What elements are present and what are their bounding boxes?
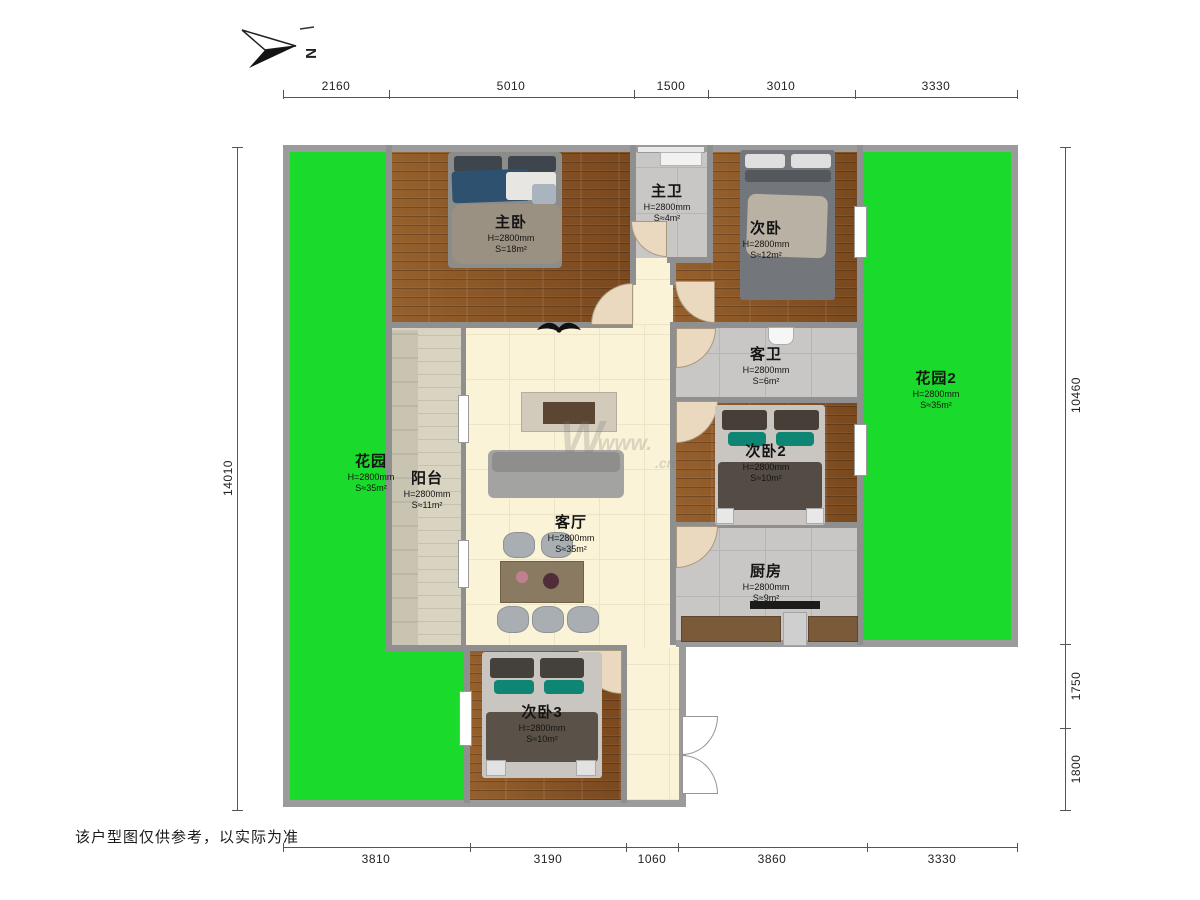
dim-right-2: 1750 (1069, 672, 1083, 701)
table-plate (543, 573, 559, 589)
north-compass-icon: N (232, 16, 327, 76)
pillow (791, 154, 831, 168)
room-height: H=2800mm (519, 723, 566, 734)
entry-door-leaf-bottom (682, 755, 718, 794)
dim-line-left (237, 147, 238, 810)
room-area: S≈11m² (404, 500, 451, 511)
window-bedroom2b-east (854, 424, 867, 476)
cushion-teal (544, 680, 584, 694)
wall-living-east (670, 328, 676, 645)
dim-tick (283, 90, 284, 99)
dim-top-2: 5010 (497, 79, 526, 93)
balcony-door-post-2 (458, 540, 469, 588)
dim-tick (1060, 644, 1071, 645)
chair (532, 606, 564, 633)
dim-tick (867, 843, 868, 852)
wall-masterbath-east (707, 145, 713, 262)
dim-tick (232, 147, 243, 148)
room-area: S≈4m² (644, 213, 691, 224)
dim-top-4: 3010 (767, 79, 796, 93)
dim-tick (1017, 843, 1018, 852)
kitchen-stove (783, 612, 807, 646)
dim-right-3: 1800 (1069, 755, 1083, 784)
dim-line-top (283, 97, 1018, 98)
kitchen-counter-left (681, 616, 781, 642)
room-name: 主卧 (488, 214, 535, 233)
dim-left-1: 14010 (221, 460, 235, 496)
bed-leg (486, 760, 506, 776)
bed-leg (806, 508, 824, 524)
wall-site-west (283, 145, 290, 807)
dim-tick (1060, 810, 1071, 811)
chair (497, 606, 529, 633)
pillow (745, 154, 785, 168)
room-height: H=2800mm (743, 365, 790, 376)
room-name: 次卧 (743, 220, 790, 239)
pillow (774, 410, 819, 430)
label-bedroom2: 次卧 H=2800mm S≈12m² (743, 220, 790, 261)
dining-table (500, 561, 584, 603)
dim-tick (678, 843, 679, 852)
dim-tick (389, 90, 390, 99)
hallway-floor (624, 648, 679, 800)
room-name: 次卧3 (519, 704, 566, 723)
label-bedroom2b: 次卧2 H=2800mm S≈10m² (743, 443, 790, 484)
room-name: 花园 (348, 453, 395, 472)
room-name: 阳台 (404, 470, 451, 489)
room-area: S≈35m² (548, 544, 595, 555)
dim-line-bottom (283, 847, 1018, 848)
dim-top-5: 3330 (922, 79, 951, 93)
dim-bottom-5: 3330 (928, 852, 957, 866)
room-garden-west-lower (287, 648, 467, 800)
room-area: S≈35m² (913, 400, 960, 411)
window-bedroom3-west (459, 691, 472, 746)
wall-master-east (630, 145, 636, 285)
room-area: S≈9m² (743, 593, 790, 604)
label-bedroom3: 次卧3 H=2800mm S≈10m² (519, 704, 566, 745)
room-height: H=2800mm (488, 233, 535, 244)
floorplan-canvas: N (0, 0, 1200, 900)
label-master-bedroom: 主卧 H=2800mm S=18m² (488, 214, 535, 255)
room-name: 厨房 (743, 563, 790, 582)
dim-tick (1060, 147, 1071, 148)
entry-door-leaf-top (682, 716, 718, 755)
room-height: H=2800mm (348, 472, 395, 483)
balcony-door-post-1 (458, 395, 469, 443)
watermark-logo: W (560, 410, 603, 464)
label-garden: 花园 H=2800mm S≈35m² (348, 453, 395, 494)
wall-site-east (1011, 145, 1018, 645)
cushion (532, 184, 556, 204)
chair (567, 606, 599, 633)
room-name: 主卫 (644, 183, 691, 202)
dim-right-1: 10460 (1069, 377, 1083, 413)
sink (660, 152, 702, 166)
dim-top-3: 1500 (657, 79, 686, 93)
pillow (722, 410, 767, 430)
dim-top-1: 2160 (322, 79, 351, 93)
room-area: S≈12m² (743, 250, 790, 261)
table-flowers (516, 571, 528, 583)
label-living-room: 客厅 H=2800mm S≈35m² (548, 514, 595, 555)
room-height: H=2800mm (644, 202, 691, 213)
watermark-cn: .cn (655, 455, 675, 471)
chair (503, 532, 535, 558)
dim-tick (855, 90, 856, 99)
dim-bottom-2: 3190 (534, 852, 563, 866)
room-height: H=2800mm (548, 533, 595, 544)
room-name: 次卧2 (743, 443, 790, 462)
room-area: S≈35m² (348, 483, 395, 494)
dim-tick (626, 843, 627, 852)
dim-tick (1060, 728, 1071, 729)
corridor-north-floor (633, 258, 673, 325)
label-garden2: 花园2 H=2800mm S≈35m² (913, 370, 960, 411)
ceiling-fan-icon (536, 318, 582, 342)
room-area: S≈10m² (743, 473, 790, 484)
dim-bottom-1: 3810 (362, 852, 391, 866)
room-area: S=18m² (488, 244, 535, 255)
wall-master-west (386, 145, 392, 328)
window-bedroom2-east (854, 206, 867, 258)
room-height: H=2800mm (743, 239, 790, 250)
north-label: N (302, 48, 319, 59)
room-height: H=2800mm (743, 462, 790, 473)
cushion-teal (494, 680, 534, 694)
label-guest-bath: 客卫 H=2800mm S=6m² (743, 346, 790, 387)
bed-leg (576, 760, 596, 776)
dim-bottom-3: 1060 (638, 852, 667, 866)
label-balcony: 阳台 H=2800mm S≈11m² (404, 470, 451, 511)
pillow (540, 658, 584, 678)
dim-line-right (1065, 147, 1066, 810)
label-master-bath: 主卫 H=2800mm S≈4m² (644, 183, 691, 224)
room-name: 客厅 (548, 514, 595, 533)
wall-balcony-east (461, 328, 466, 651)
dim-tick (232, 810, 243, 811)
room-height: H=2800mm (913, 389, 960, 400)
dim-tick (708, 90, 709, 99)
room-name: 客卫 (743, 346, 790, 365)
disclaimer-text: 该户型图仅供参考，以实际为准 (75, 826, 299, 847)
pillow (490, 658, 534, 678)
toilet (768, 327, 794, 345)
label-kitchen: 厨房 H=2800mm S≈9m² (743, 563, 790, 604)
dim-tick (1017, 90, 1018, 99)
room-height: H=2800mm (404, 489, 451, 500)
dim-bottom-4: 3860 (758, 852, 787, 866)
dim-tick (470, 843, 471, 852)
room-area: S=6m² (743, 376, 790, 387)
dim-tick (634, 90, 635, 99)
room-height: H=2800mm (743, 582, 790, 593)
room-name: 花园2 (913, 370, 960, 389)
room-area: S≈10m² (519, 734, 566, 745)
pillow-row (745, 170, 831, 182)
kitchen-counter-right (808, 616, 858, 642)
bed-leg (716, 508, 734, 524)
watermark-www: www. (598, 432, 652, 456)
